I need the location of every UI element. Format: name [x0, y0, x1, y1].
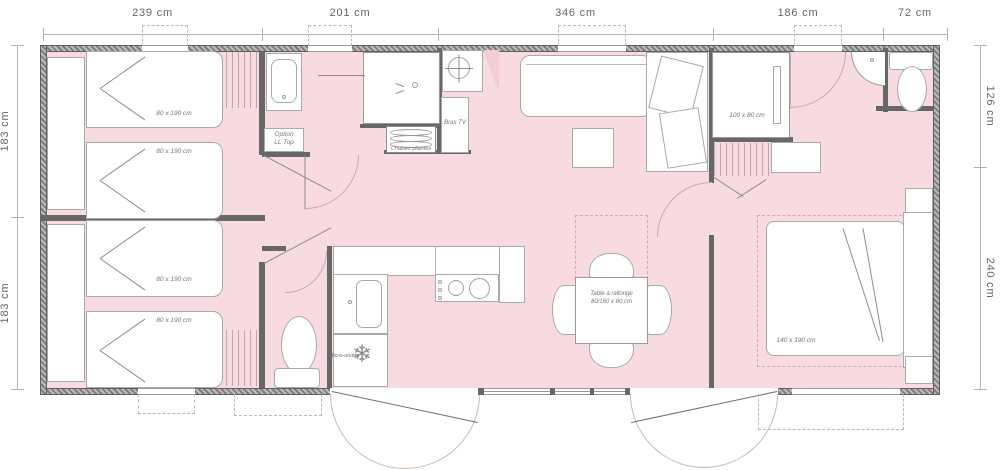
bed-size-label: 140 x 190 cm	[756, 337, 836, 345]
dimension-tick	[11, 217, 24, 218]
tv-bracket-cabinet: Bras TV	[441, 97, 469, 153]
table-label-line2: 80/160 x 80 cm	[591, 299, 632, 305]
shower-tray	[363, 52, 440, 124]
table-label: Table à rallonge 80/160 x 80 cm	[577, 291, 646, 307]
dimension-tick	[262, 28, 263, 41]
hanging-clothes	[226, 52, 260, 108]
window-post	[590, 388, 594, 395]
dim-top-1: 239 cm	[43, 7, 262, 19]
option-line2: LL Top	[274, 139, 294, 146]
window-outline	[794, 25, 842, 46]
wardrobe	[47, 224, 85, 382]
burner	[448, 280, 464, 296]
faucet-dot	[348, 300, 352, 304]
dim-left-2: 183 cm	[0, 265, 11, 341]
bed-size-label: 80 x 190 cm	[139, 110, 209, 118]
knob-dot	[438, 296, 442, 300]
toilet-tank	[274, 368, 320, 388]
chair	[589, 253, 634, 279]
folding-chairs-label: Chaises pliantes	[385, 146, 437, 153]
dimension-tick	[713, 28, 714, 41]
hanging-clothes	[226, 330, 260, 386]
window	[308, 45, 352, 52]
dim-left-1: 183 cm	[0, 93, 11, 169]
wardrobe	[47, 57, 85, 210]
dimension-tick	[11, 389, 24, 390]
nightstand	[905, 356, 933, 384]
chair	[646, 285, 672, 335]
knob-dot	[438, 288, 442, 292]
window-outline	[138, 394, 195, 414]
dimension-tick	[11, 45, 24, 46]
dimension-tick	[974, 45, 987, 46]
dining-table: Table à rallonge 80/160 x 80 cm	[575, 277, 648, 344]
bed-size-label: 80 x 190 cm	[139, 317, 209, 325]
double-bed	[766, 221, 905, 356]
bed-size-label: 80 x 190 cm	[139, 276, 209, 284]
sofa-back-line	[526, 64, 646, 65]
dim-top-2: 201 cm	[262, 7, 438, 19]
option-label: Option LL Top	[265, 131, 303, 148]
bed-size-label: 80 x 190 cm	[139, 148, 209, 156]
window-post	[550, 388, 555, 395]
dim-right-1: 126 cm	[984, 68, 996, 144]
dimension-tick	[43, 28, 44, 41]
toilet-bowl	[281, 316, 317, 374]
coffee-table	[572, 128, 614, 168]
washing-machine-option-box: Option LL Top	[264, 128, 304, 152]
microwave-label: Micro-ondes	[326, 353, 362, 360]
dim-right-2: 240 cm	[984, 240, 996, 316]
wall-wc1-top	[262, 246, 286, 251]
counter-divider	[435, 247, 436, 275]
hanging-clothes	[714, 143, 772, 176]
wall-wc1-right	[327, 246, 332, 388]
outer-wall-right	[933, 45, 940, 395]
single-bed	[86, 220, 223, 297]
window-outline	[142, 25, 188, 46]
window-outline	[558, 25, 626, 46]
dimension-tick	[974, 389, 987, 390]
faucet-dot	[870, 58, 874, 62]
headboard-wardrobe	[903, 212, 933, 368]
shower-head-icon	[412, 82, 418, 88]
kitchen-counter-top	[333, 246, 525, 276]
entrance-door-swing-arc	[630, 394, 778, 468]
dimension-tick	[438, 28, 439, 41]
toilet-bowl	[897, 66, 927, 112]
kitchen-counter-end	[499, 246, 525, 303]
dimension-line-right	[980, 45, 981, 390]
table-label-line1: Table à rallonge	[590, 291, 632, 297]
knob-dot	[438, 280, 442, 284]
burner	[469, 278, 490, 299]
dim-top-5: 72 cm	[883, 7, 947, 19]
dim-top-3: 346 cm	[438, 7, 713, 19]
window-post	[478, 388, 484, 395]
shower-size-label: 100 x 80 cm	[712, 112, 782, 120]
folding-chairs-box: Chaises pliantes	[386, 126, 436, 153]
outside-step-outline	[234, 394, 322, 416]
shelf	[905, 188, 933, 214]
window-outline	[308, 25, 352, 46]
pillow	[659, 107, 707, 169]
shower-door-leaf	[318, 75, 365, 76]
dimension-tick	[883, 28, 884, 41]
dimension-tick	[947, 28, 948, 41]
drain-dot	[282, 95, 286, 99]
floorplan-canvas: 239 cm 201 cm 346 cm 186 cm 72 cm 183 cm…	[0, 0, 1000, 470]
window	[558, 45, 626, 52]
basin-cross-line	[459, 55, 460, 83]
dim-top-4: 186 cm	[713, 7, 883, 19]
wardrobe	[771, 142, 821, 173]
window	[794, 45, 842, 52]
tv-bracket-label: Bras TV	[442, 120, 468, 128]
dimension-tick	[974, 167, 987, 168]
entrance-door-swing-arc	[330, 394, 480, 469]
outside-step-outline	[758, 394, 904, 430]
option-line1: Option	[274, 131, 293, 138]
kitchen-sink	[356, 280, 382, 328]
wall-master	[709, 235, 714, 388]
wall-bathroom	[262, 152, 310, 157]
